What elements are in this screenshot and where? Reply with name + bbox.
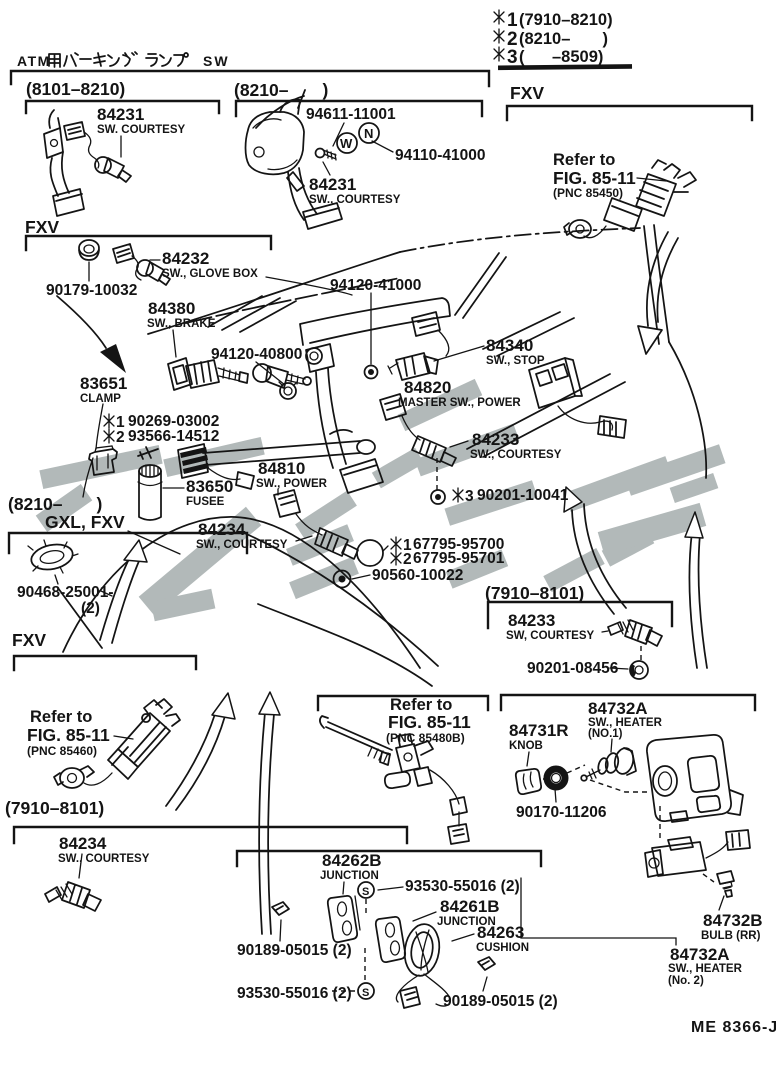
svg-text:FIG. 85-11: FIG. 85-11 <box>388 712 471 732</box>
svg-text:90468-25001-: 90468-25001- <box>17 584 114 601</box>
svg-text:84380: 84380 <box>148 299 195 318</box>
svg-text:FXV: FXV <box>12 630 46 650</box>
svg-text:1: 1 <box>507 10 518 31</box>
svg-text:ATM: ATM <box>17 53 51 69</box>
svg-text:(NO.1): (NO.1) <box>588 728 623 740</box>
svg-text:S: S <box>362 886 369 898</box>
svg-text:(7910–8210): (7910–8210) <box>519 11 613 29</box>
svg-text:JUNCTION: JUNCTION <box>320 870 379 882</box>
svg-text:SW., GLOVE BOX: SW., GLOVE BOX <box>162 268 258 280</box>
svg-text:(7910–8101): (7910–8101) <box>485 583 584 603</box>
svg-text:(8210– ): (8210– ) <box>519 30 608 48</box>
svg-text:N: N <box>364 126 373 141</box>
svg-text:SW. COURTESY: SW. COURTESY <box>97 124 186 136</box>
svg-text:BULB (RR): BULB (RR) <box>701 930 761 942</box>
svg-text:84233: 84233 <box>472 430 519 449</box>
svg-text:84731R: 84731R <box>509 721 569 740</box>
svg-text:SW., COURTESY: SW., COURTESY <box>470 449 562 461</box>
svg-text:93530-55016 (2): 93530-55016 (2) <box>405 878 520 895</box>
svg-text:(PNC 85460): (PNC 85460) <box>27 744 97 758</box>
svg-text:SW., STOP: SW., STOP <box>486 355 545 367</box>
svg-text:KNOB: KNOB <box>509 740 543 752</box>
svg-text:(PNC 85480B): (PNC 85480B) <box>386 731 465 745</box>
svg-text:84261B: 84261B <box>440 897 500 916</box>
svg-text:84810: 84810 <box>258 459 305 478</box>
svg-text:(2): (2) <box>81 600 100 617</box>
svg-text:84732A: 84732A <box>670 945 730 964</box>
svg-text:GXL, FXV: GXL, FXV <box>45 512 125 532</box>
svg-text:83650: 83650 <box>186 477 233 496</box>
svg-text:94120-41000: 94120-41000 <box>330 277 421 294</box>
svg-text:83651: 83651 <box>80 374 127 393</box>
svg-text:Refer to: Refer to <box>30 708 92 726</box>
svg-text:SW: SW <box>203 53 230 69</box>
svg-text:(8210– ): (8210– ) <box>234 80 328 100</box>
svg-text:SW., POWER: SW., POWER <box>256 478 328 490</box>
svg-text:SW, COURTESY: SW, COURTESY <box>506 630 595 642</box>
svg-text:94611-11001: 94611-11001 <box>306 106 396 123</box>
svg-text:93530-55016 (2): 93530-55016 (2) <box>237 985 352 1002</box>
svg-text:90201-08456: 90201-08456 <box>527 660 619 677</box>
svg-text:90560-10022: 90560-10022 <box>372 567 463 584</box>
svg-text:84234: 84234 <box>198 520 246 539</box>
svg-text:84231: 84231 <box>309 175 356 194</box>
svg-text:3: 3 <box>507 47 518 68</box>
svg-text:(No. 2): (No. 2) <box>668 975 704 987</box>
svg-text:S: S <box>362 987 369 999</box>
svg-text:(8101–8210): (8101–8210) <box>26 79 125 99</box>
svg-text:FIG. 85-11: FIG. 85-11 <box>27 725 110 745</box>
svg-text:90179-10032: 90179-10032 <box>46 282 137 299</box>
svg-text:SW., COURTESY: SW., COURTESY <box>309 194 401 206</box>
svg-text:CLAMP: CLAMP <box>80 393 121 405</box>
svg-text:(8210– ): (8210– ) <box>8 494 102 514</box>
svg-text:90189-05015 (2): 90189-05015 (2) <box>237 942 352 959</box>
svg-text:ME 8366-J: ME 8366-J <box>691 1019 776 1036</box>
svg-text:84234: 84234 <box>59 834 107 853</box>
svg-text:93566-14512: 93566-14512 <box>128 428 219 445</box>
svg-text:84340: 84340 <box>486 336 533 355</box>
svg-text:84233: 84233 <box>508 611 555 630</box>
svg-text:FUSEE: FUSEE <box>186 496 225 508</box>
svg-text:(PNC 85450): (PNC 85450) <box>553 186 623 200</box>
svg-text:FIG. 85-11: FIG. 85-11 <box>553 168 636 188</box>
svg-text:84231: 84231 <box>97 105 144 124</box>
svg-text:2: 2 <box>116 429 125 446</box>
svg-text:( –8509): ( –8509) <box>519 48 603 66</box>
svg-text:MASTER SW., POWER: MASTER SW., POWER <box>398 397 521 409</box>
svg-text:94120-40800: 94120-40800 <box>211 346 302 363</box>
svg-text:CUSHION: CUSHION <box>476 942 529 954</box>
svg-text:90170-11206: 90170-11206 <box>516 804 607 821</box>
svg-text:94110-41000: 94110-41000 <box>395 147 486 164</box>
svg-text:67795-95701: 67795-95701 <box>413 550 505 567</box>
svg-text:SW., BRAKE: SW., BRAKE <box>147 318 216 330</box>
svg-text:SW., COURTESY: SW., COURTESY <box>58 853 150 865</box>
svg-text:2: 2 <box>403 551 412 568</box>
svg-text:FXV: FXV <box>510 83 544 103</box>
svg-text:84232: 84232 <box>162 249 209 268</box>
svg-text:FXV: FXV <box>25 217 59 237</box>
svg-text:84732A: 84732A <box>588 699 648 718</box>
svg-text:SW., HEATER: SW., HEATER <box>668 963 743 975</box>
svg-text:SW., COURTESY: SW., COURTESY <box>196 539 288 551</box>
svg-text:(7910–8101): (7910–8101) <box>5 798 104 818</box>
svg-text:84732B: 84732B <box>703 911 763 930</box>
svg-text:84820: 84820 <box>404 378 451 397</box>
svg-text:84262B: 84262B <box>322 851 382 870</box>
svg-text:84263: 84263 <box>477 923 524 942</box>
svg-text:90189-05015 (2): 90189-05015 (2) <box>443 993 558 1010</box>
svg-text:3: 3 <box>465 488 474 505</box>
svg-text:W: W <box>340 136 353 151</box>
svg-text:Refer to: Refer to <box>553 151 615 169</box>
svg-text:90201-10041: 90201-10041 <box>477 487 569 504</box>
